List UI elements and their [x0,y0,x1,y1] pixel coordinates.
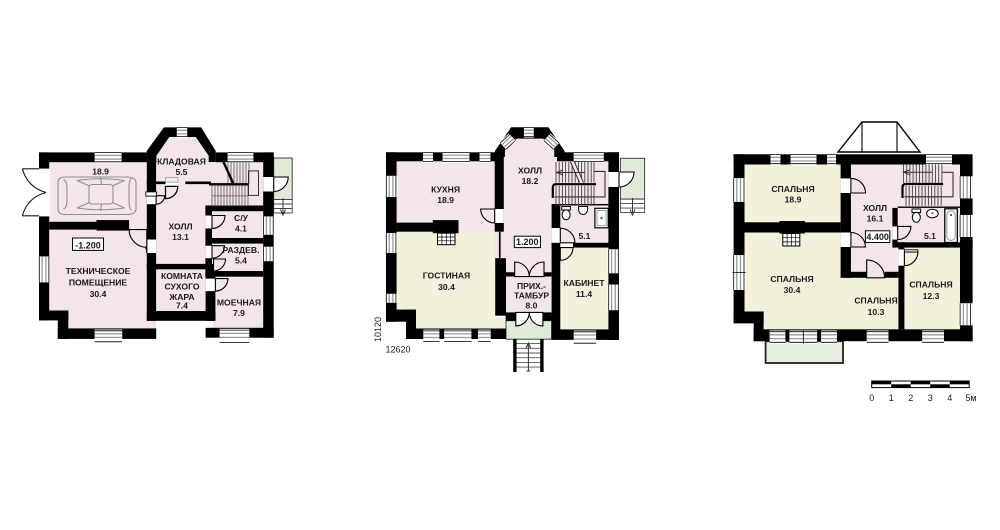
svg-text:ПРИХ.-: ПРИХ.- [517,281,546,291]
svg-text:13.1: 13.1 [172,232,189,242]
svg-text:МОЕЧНАЯ: МОЕЧНАЯ [217,298,261,308]
svg-text:С/У: С/У [234,213,249,223]
svg-text:1: 1 [889,393,894,403]
svg-text:ХОЛЛ: ХОЛЛ [518,166,542,176]
svg-text:7.4: 7.4 [176,301,188,311]
svg-text:3: 3 [928,393,933,403]
svg-text:КУХНЯ: КУХНЯ [431,185,460,195]
svg-text:ПОМЕЩЕНИЕ: ПОМЕЩЕНИЕ [69,278,128,288]
svg-text:ХОЛЛ: ХОЛЛ [863,203,887,213]
svg-text:18.9: 18.9 [785,195,802,205]
svg-text:10.3: 10.3 [868,307,885,317]
svg-text:-1.200: -1.200 [75,240,101,250]
svg-text:КЛАДОВАЯ: КЛАДОВАЯ [157,157,206,167]
svg-text:ТЕХНИЧЕСКОЕ: ТЕХНИЧЕСКОЕ [66,266,131,276]
svg-text:СПАЛЬНЯ: СПАЛЬНЯ [854,296,897,306]
svg-text:4: 4 [947,393,952,403]
svg-text:4.1: 4.1 [235,224,247,234]
svg-text:5.1: 5.1 [579,231,591,241]
svg-text:18.9: 18.9 [92,167,109,177]
svg-text:18.2: 18.2 [522,176,539,186]
svg-text:1.200: 1.200 [516,237,539,247]
svg-text:5.1: 5.1 [924,231,936,241]
svg-text:30.4: 30.4 [784,285,801,295]
svg-text:КОМНАТА: КОМНАТА [161,271,203,281]
svg-text:0: 0 [869,393,874,403]
svg-text:16.1: 16.1 [867,214,884,224]
svg-text:4.400: 4.400 [866,232,889,242]
svg-text:11.4: 11.4 [576,289,592,299]
svg-text:ГОСТИНАЯ: ГОСТИНАЯ [423,271,470,281]
svg-text:10120: 10120 [373,317,383,342]
svg-text:7.9: 7.9 [233,308,245,318]
svg-text:ХОЛЛ: ХОЛЛ [168,222,192,232]
svg-text:2: 2 [908,393,913,403]
svg-text:ТАМБУР: ТАМБУР [514,291,549,301]
svg-text:СУХОГО: СУХОГО [164,282,199,292]
svg-text:12620: 12620 [385,345,410,355]
svg-text:СПАЛЬНЯ: СПАЛЬНЯ [770,274,813,284]
svg-text:КАБИНЕТ: КАБИНЕТ [564,278,606,288]
svg-text:5.4: 5.4 [235,256,247,266]
svg-text:18.9: 18.9 [437,195,454,205]
svg-text:8.0: 8.0 [526,301,538,311]
svg-text:5м: 5м [965,393,976,403]
svg-text:5.5: 5.5 [176,167,188,177]
svg-text:СПАЛЬНЯ: СПАЛЬНЯ [771,184,814,194]
svg-text:РАЗДЕВ.: РАЗДЕВ. [222,245,259,255]
svg-text:30.4: 30.4 [90,289,107,299]
svg-text:30.4: 30.4 [438,282,455,292]
svg-text:12.3: 12.3 [923,291,940,301]
svg-text:СПАЛЬНЯ: СПАЛЬНЯ [909,280,952,290]
